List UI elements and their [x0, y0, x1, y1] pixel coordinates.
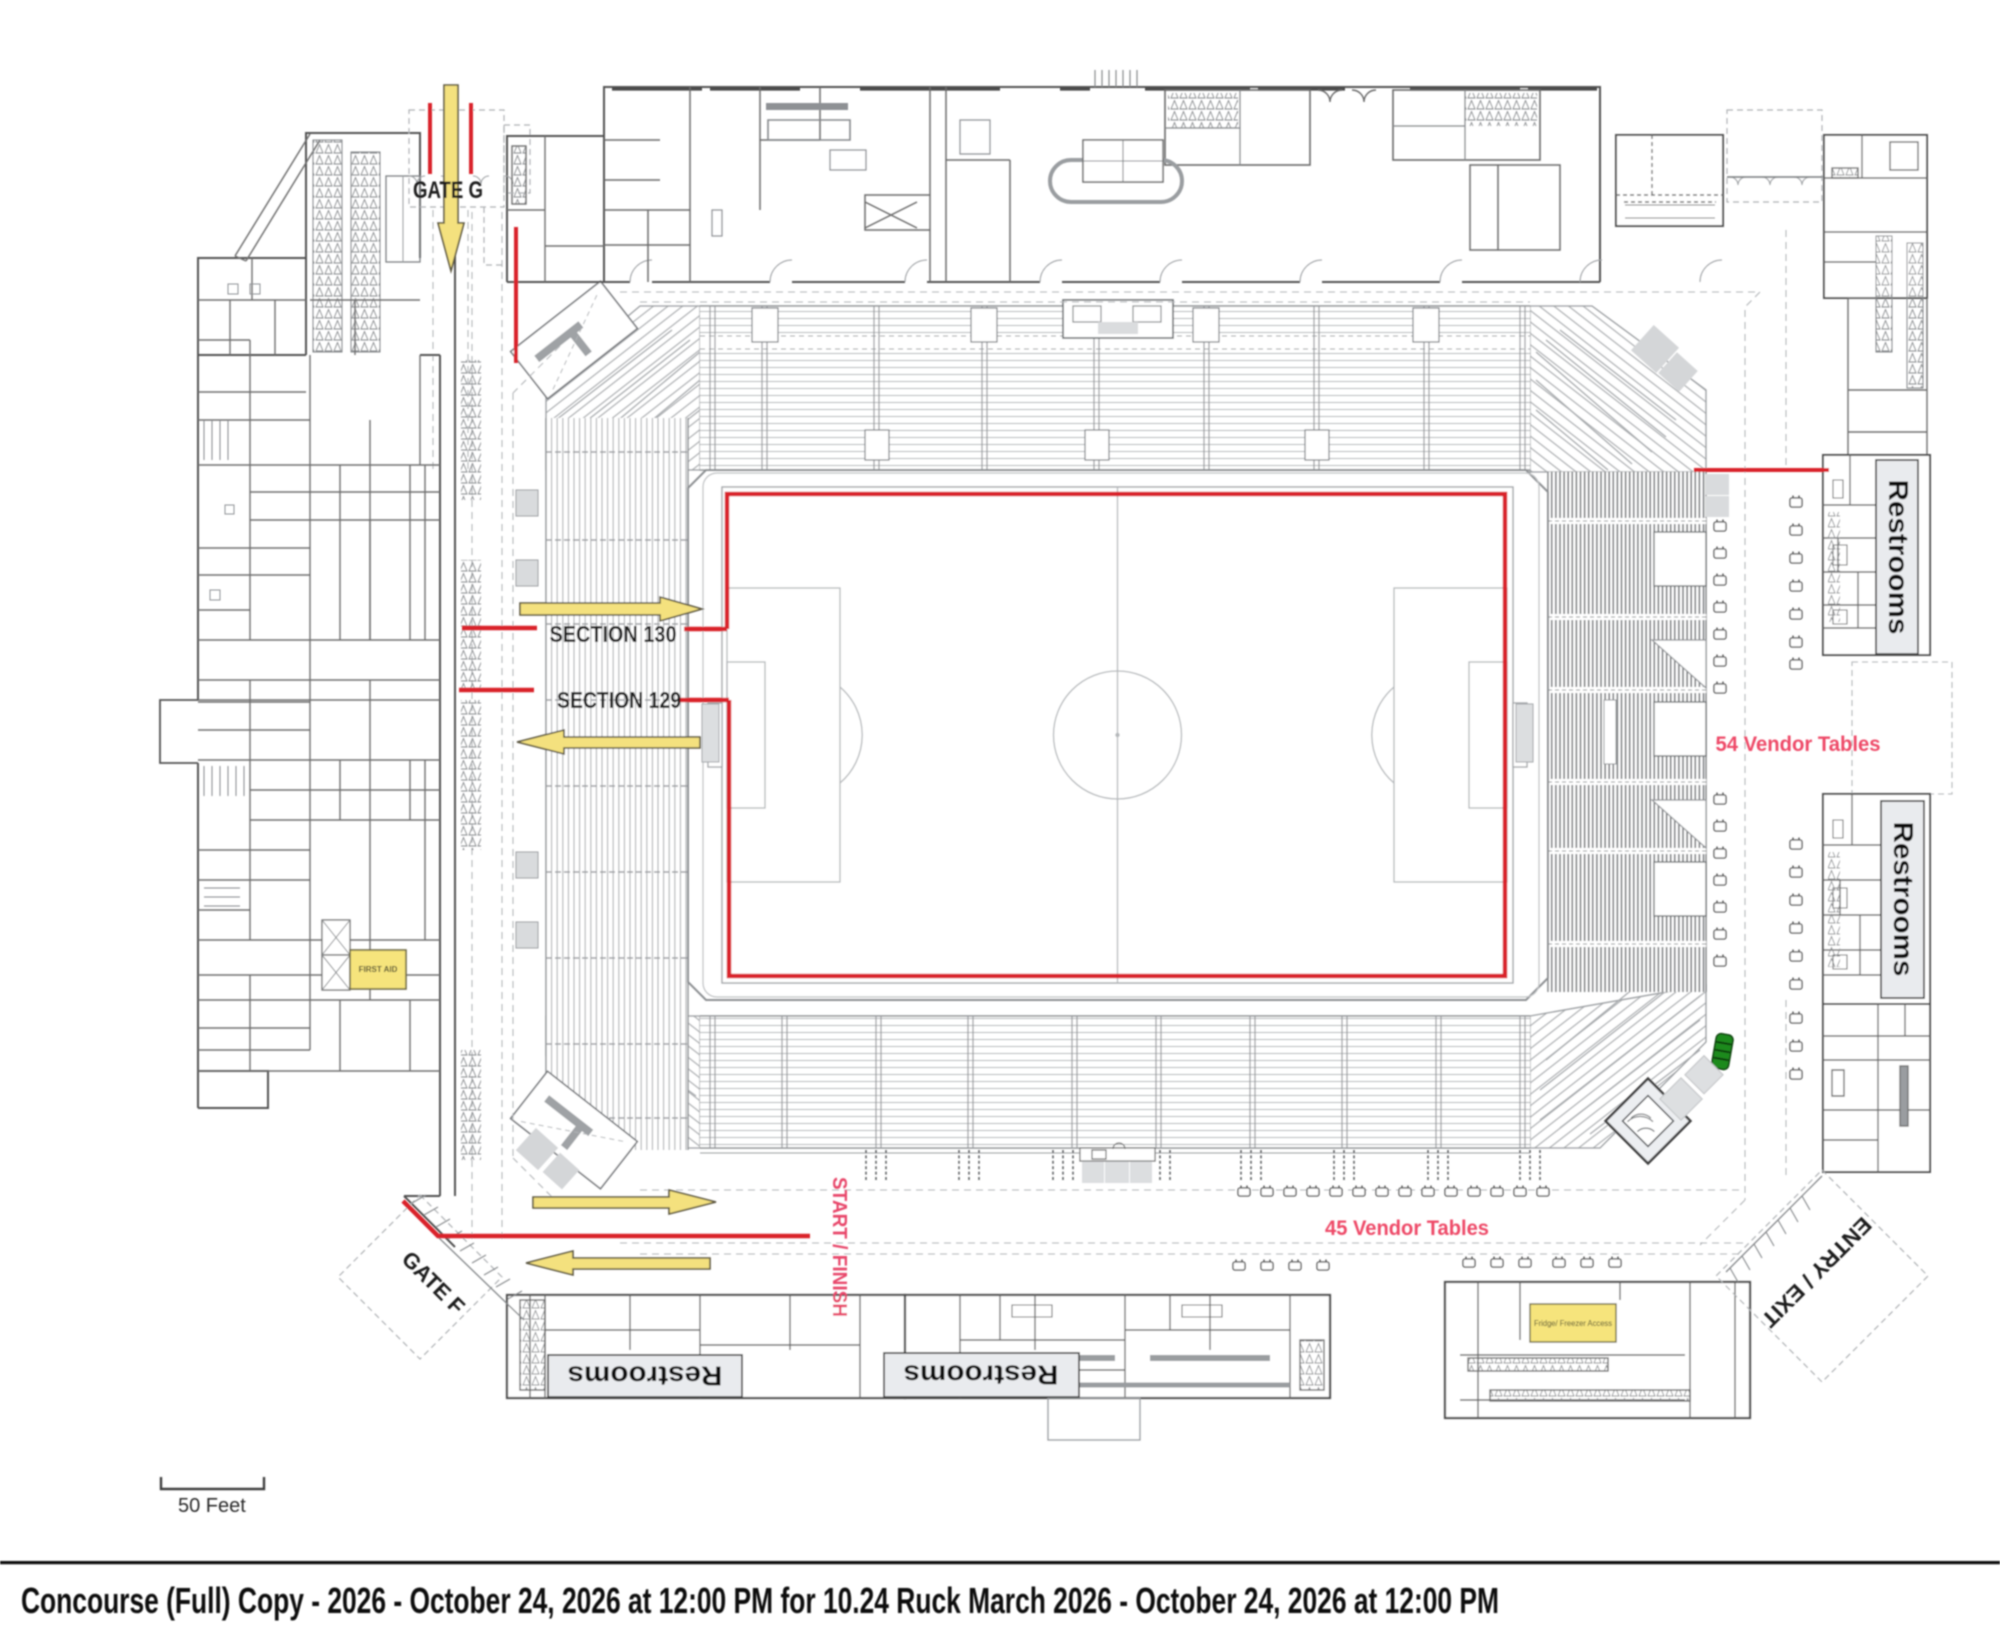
svg-text:Restrooms: Restrooms	[904, 1360, 1059, 1391]
svg-text:54 Vendor Tables: 54 Vendor Tables	[1716, 733, 1881, 756]
svg-text:Fridge/ Freezer Access: Fridge/ Freezer Access	[1534, 1319, 1612, 1328]
svg-text:GATE G: GATE G	[413, 177, 483, 204]
svg-text:Restrooms: Restrooms	[1883, 480, 1914, 635]
svg-text:45 Vendor Tables: 45 Vendor Tables	[1325, 1217, 1489, 1240]
svg-text:50 Feet: 50 Feet	[178, 1495, 246, 1517]
svg-text:Restrooms: Restrooms	[568, 1361, 723, 1392]
svg-text:SECTION 130: SECTION 130	[550, 621, 677, 647]
svg-text:FIRST AID: FIRST AID	[359, 965, 398, 974]
svg-text:Restrooms: Restrooms	[1888, 822, 1919, 977]
svg-text:Concourse (Full) Copy - 2026 -: Concourse (Full) Copy - 2026 - October 2…	[21, 1580, 1499, 1621]
svg-text:SECTION 129: SECTION 129	[557, 687, 681, 713]
svg-text:START / FINISH: START / FINISH	[828, 1177, 850, 1317]
